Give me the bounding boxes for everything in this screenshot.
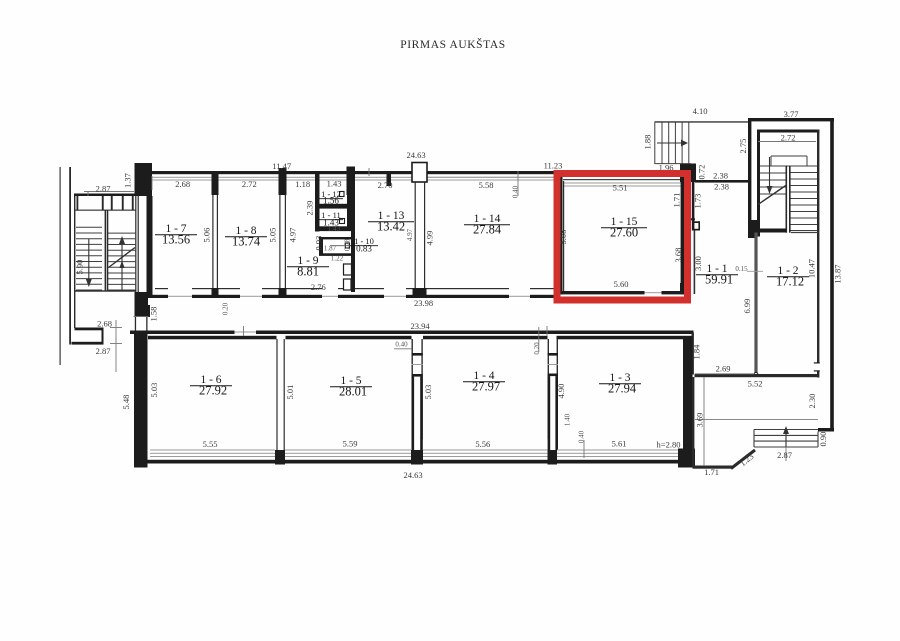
svg-text:1.88: 1.88: [643, 135, 653, 150]
svg-text:1.43: 1.43: [328, 225, 341, 233]
svg-text:27.92: 27.92: [199, 384, 227, 398]
svg-text:1.58: 1.58: [149, 307, 159, 322]
svg-text:2.72: 2.72: [781, 133, 796, 143]
svg-text:0.72: 0.72: [697, 165, 707, 180]
svg-text:4.10: 4.10: [693, 106, 708, 116]
svg-text:2.30: 2.30: [807, 394, 817, 409]
svg-text:0.40: 0.40: [512, 185, 520, 198]
svg-text:4.90: 4.90: [556, 384, 566, 399]
svg-text:5.03: 5.03: [423, 385, 433, 400]
svg-text:1.43: 1.43: [327, 179, 342, 189]
svg-text:1.37: 1.37: [123, 173, 133, 188]
svg-text:6.99: 6.99: [742, 299, 752, 314]
svg-text:2.39: 2.39: [305, 201, 315, 216]
svg-text:59.91: 59.91: [705, 273, 733, 287]
svg-text:13.87: 13.87: [833, 264, 843, 283]
svg-text:13.56: 13.56: [162, 233, 190, 247]
svg-text:17.12: 17.12: [776, 275, 804, 289]
svg-text:0.93: 0.93: [314, 236, 324, 251]
svg-text:5.60: 5.60: [614, 279, 629, 289]
svg-text:2.87: 2.87: [96, 346, 111, 356]
svg-text:5.56: 5.56: [475, 439, 490, 449]
svg-text:2.72: 2.72: [242, 179, 257, 189]
svg-text:5.52: 5.52: [748, 379, 763, 389]
svg-text:0.40: 0.40: [578, 430, 586, 443]
svg-text:27.60: 27.60: [610, 226, 638, 240]
svg-text:5.61: 5.61: [612, 439, 627, 449]
svg-text:23.98: 23.98: [414, 298, 433, 308]
svg-text:0.20: 0.20: [222, 302, 230, 315]
svg-text:1.73: 1.73: [693, 194, 703, 209]
svg-text:24.63: 24.63: [406, 150, 425, 160]
svg-text:11.23: 11.23: [544, 161, 563, 171]
svg-text:2.68: 2.68: [175, 179, 190, 189]
svg-text:2.75: 2.75: [738, 139, 748, 154]
svg-text:27.97: 27.97: [472, 380, 500, 394]
svg-text:1.22: 1.22: [331, 255, 344, 263]
svg-text:0.40: 0.40: [395, 341, 408, 349]
svg-text:11.47: 11.47: [272, 161, 291, 171]
svg-text:1.84: 1.84: [692, 344, 702, 360]
svg-text:1.71: 1.71: [704, 467, 719, 477]
svg-text:23.94: 23.94: [410, 321, 430, 331]
svg-text:4.97: 4.97: [288, 228, 298, 243]
svg-text:0.90: 0.90: [818, 432, 828, 447]
svg-text:8.81: 8.81: [297, 265, 319, 279]
svg-text:5.05: 5.05: [268, 228, 278, 243]
svg-text:1.56: 1.56: [323, 195, 339, 205]
svg-text:5.51: 5.51: [613, 183, 628, 193]
svg-text:28.01: 28.01: [339, 385, 367, 399]
svg-text:13.74: 13.74: [232, 235, 261, 249]
svg-text:2.70: 2.70: [378, 180, 393, 190]
svg-text:2.69: 2.69: [716, 364, 731, 374]
svg-text:0.20: 0.20: [533, 342, 541, 355]
svg-text:1.18: 1.18: [295, 179, 310, 189]
svg-text:2.38: 2.38: [714, 182, 729, 192]
svg-text:5.48: 5.48: [121, 395, 131, 410]
svg-text:3.69: 3.69: [695, 413, 705, 428]
svg-text:3.00: 3.00: [693, 256, 703, 271]
svg-text:4.97: 4.97: [406, 228, 414, 241]
svg-text:0.83: 0.83: [356, 244, 372, 254]
svg-text:2.38: 2.38: [713, 171, 728, 181]
svg-text:13.42: 13.42: [377, 220, 405, 234]
svg-text:2.68: 2.68: [97, 319, 112, 329]
svg-text:5.90: 5.90: [75, 260, 85, 275]
svg-text:4.99: 4.99: [425, 231, 435, 246]
svg-text:3.68: 3.68: [673, 248, 683, 263]
svg-text:5.01: 5.01: [285, 385, 295, 400]
svg-text:0.78: 0.78: [344, 238, 352, 251]
svg-text:5.55: 5.55: [203, 439, 218, 449]
svg-text:1.40: 1.40: [564, 413, 572, 426]
svg-text:5.58: 5.58: [479, 180, 494, 190]
svg-text:10.47: 10.47: [807, 259, 817, 278]
svg-text:1.87: 1.87: [324, 245, 337, 253]
svg-text:h=2.80: h=2.80: [657, 440, 681, 450]
svg-text:5.59: 5.59: [343, 439, 358, 449]
svg-text:5.06: 5.06: [202, 228, 212, 243]
svg-text:PIRMAS AUKŠTAS: PIRMAS AUKŠTAS: [400, 37, 506, 51]
svg-text:27.94: 27.94: [608, 382, 637, 396]
svg-text:24.63: 24.63: [403, 470, 422, 480]
svg-text:3.77: 3.77: [784, 109, 799, 119]
svg-text:5.03: 5.03: [149, 383, 159, 398]
svg-text:2.87: 2.87: [96, 184, 111, 194]
svg-text:2.87: 2.87: [777, 450, 792, 460]
svg-text:1.71: 1.71: [672, 193, 682, 208]
svg-text:0.15: 0.15: [735, 265, 748, 273]
svg-text:2.76: 2.76: [311, 282, 326, 292]
svg-text:27.84: 27.84: [473, 223, 502, 237]
